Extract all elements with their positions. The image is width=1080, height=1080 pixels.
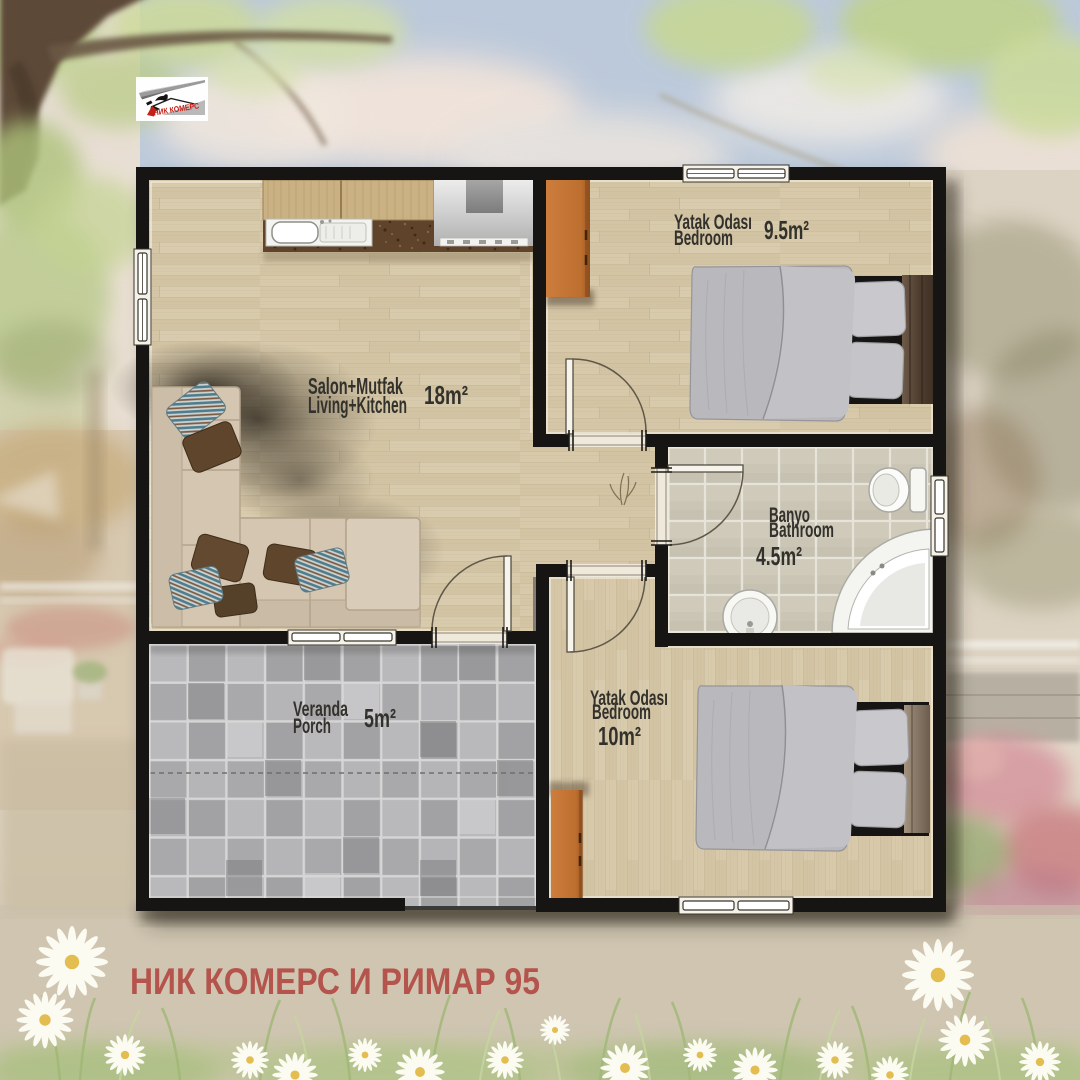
svg-text:Bedroom: Bedroom bbox=[674, 227, 733, 250]
svg-text:10m²: 10m² bbox=[598, 721, 641, 751]
svg-text:9.5m²: 9.5m² bbox=[764, 215, 809, 245]
svg-text:5m²: 5m² bbox=[364, 703, 396, 733]
svg-text:4.5m²: 4.5m² bbox=[756, 541, 802, 571]
svg-text:Living+Kitchen: Living+Kitchen bbox=[308, 392, 407, 418]
svg-text:18m²: 18m² bbox=[424, 380, 468, 410]
svg-text:НИК КОМЕРС И РИМАР 95: НИК КОМЕРС И РИМАР 95 bbox=[130, 961, 540, 1002]
svg-text:Porch: Porch bbox=[293, 715, 331, 738]
svg-text:Bathroom: Bathroom bbox=[769, 519, 834, 542]
